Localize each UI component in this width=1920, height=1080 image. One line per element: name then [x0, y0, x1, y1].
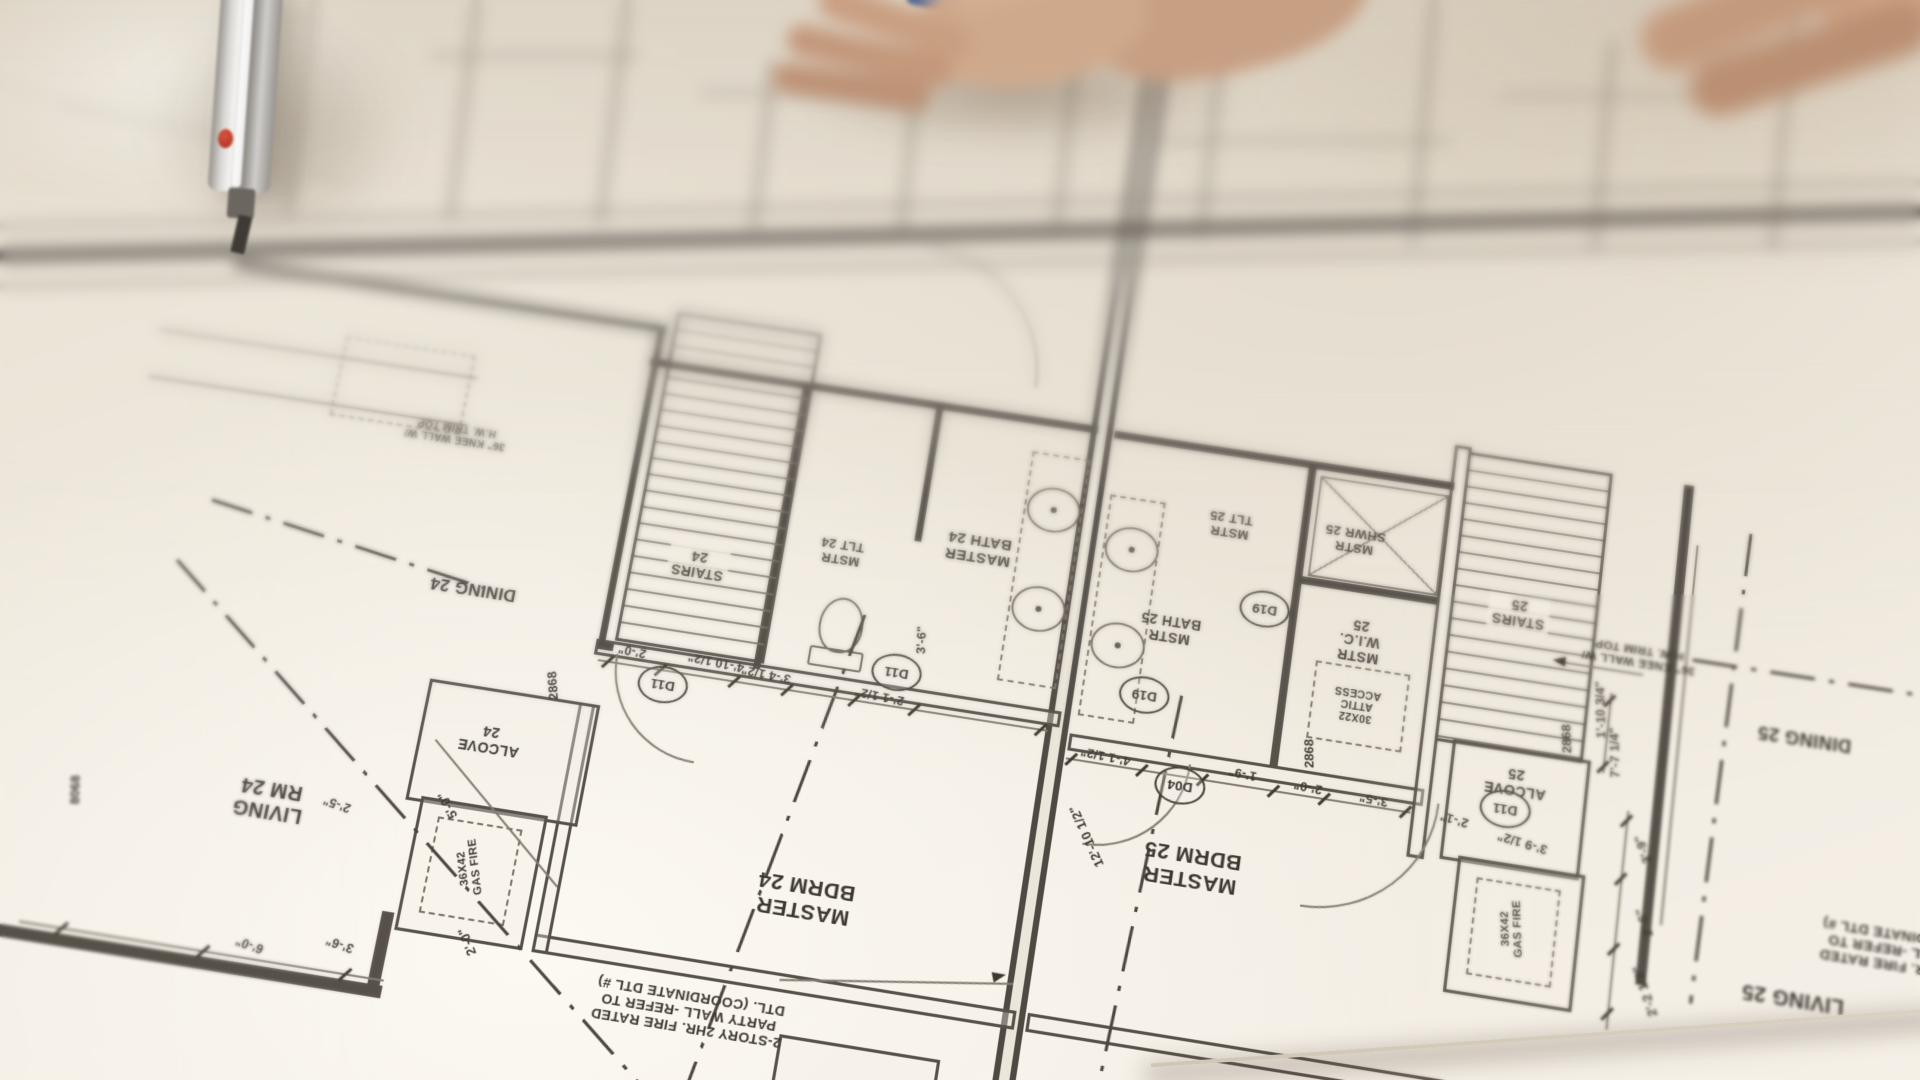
centerline — [1689, 534, 1752, 1004]
toilet-tank — [807, 645, 864, 673]
room-label-living-25: LIVING 25 — [1741, 979, 1845, 1019]
note-attic-access: 30X22 ATTIC ACCESS — [1331, 683, 1382, 725]
dimension-label: 1'-10 3/4" — [1593, 681, 1608, 739]
room-label-mstr-bath-25: MSTR BATH 25 — [1138, 608, 1202, 648]
dimension-label: 3'-6" — [914, 626, 929, 654]
metal-pen-tool — [202, 0, 332, 275]
dimension-label: 3'-6" — [324, 933, 356, 956]
window-tag: 8068 — [68, 775, 83, 805]
dimension-line — [1605, 811, 1629, 1030]
room-label-master-bath-24: MASTER BATH 24 — [944, 527, 1014, 570]
island — [329, 336, 475, 435]
wall — [365, 911, 395, 998]
room-label-mstr-tlt-24: MSTR TLT 24 — [818, 534, 866, 569]
wall — [1114, 431, 1455, 491]
room-label-dining-24: DINING 24 — [429, 573, 518, 605]
room-label-living-rm-24: LIVING RM 24 — [230, 772, 309, 828]
door-tag: 2868 — [1302, 739, 1317, 768]
room-label-master-bdrm-25: MASTER BDRM 25 — [1140, 836, 1243, 899]
wall — [0, 910, 383, 998]
leader-arrowhead — [992, 970, 1007, 983]
stairs-24 — [615, 312, 823, 664]
dimension-label: 6'-0" — [233, 933, 265, 956]
label-gas-fire-25: 36X42 GAS FIRE — [1498, 900, 1525, 958]
room-label-dining-25: DINING 25 — [1757, 722, 1852, 757]
hand-holding-pen — [760, 0, 1360, 152]
second-hand-top-right — [1600, 0, 1920, 100]
wall — [771, 1034, 940, 1080]
dimension-label: 7'-7 1/4" — [1607, 727, 1622, 778]
door-tag: 2868 — [545, 671, 561, 701]
note-party-wall-neighbor: 2-STORY 2HR. FIRE RATED PARTY WALL -REFE… — [1819, 914, 1920, 991]
door-tag: 2868 — [1559, 724, 1574, 753]
door-arc — [908, 246, 1056, 388]
room-label-master-bdrm-24: MASTER BDRM 24 — [752, 866, 857, 930]
dimension-label: 2'-2 1/2" — [1630, 964, 1661, 1019]
wall — [914, 407, 943, 542]
blueprint-photo-scene: MASTER BDRM 24 MASTER BDRM 25 LIVING RM … — [0, 0, 1920, 1080]
leader-arrowhead — [1552, 655, 1566, 667]
tool-tip — [230, 214, 252, 254]
dimension-label: 2'-5" — [321, 793, 353, 816]
detail-bubble-d19: D19 — [1237, 587, 1292, 631]
room-label-mstr-tlt-25: MSTR TLT 25 — [1207, 507, 1254, 542]
room-label-mstr-wic-25: MSTR W.I.C. 25 — [1336, 614, 1383, 667]
note-knee-wall: 36" KNEE WALL W/ H.W. TRIM TOP — [1581, 634, 1697, 677]
